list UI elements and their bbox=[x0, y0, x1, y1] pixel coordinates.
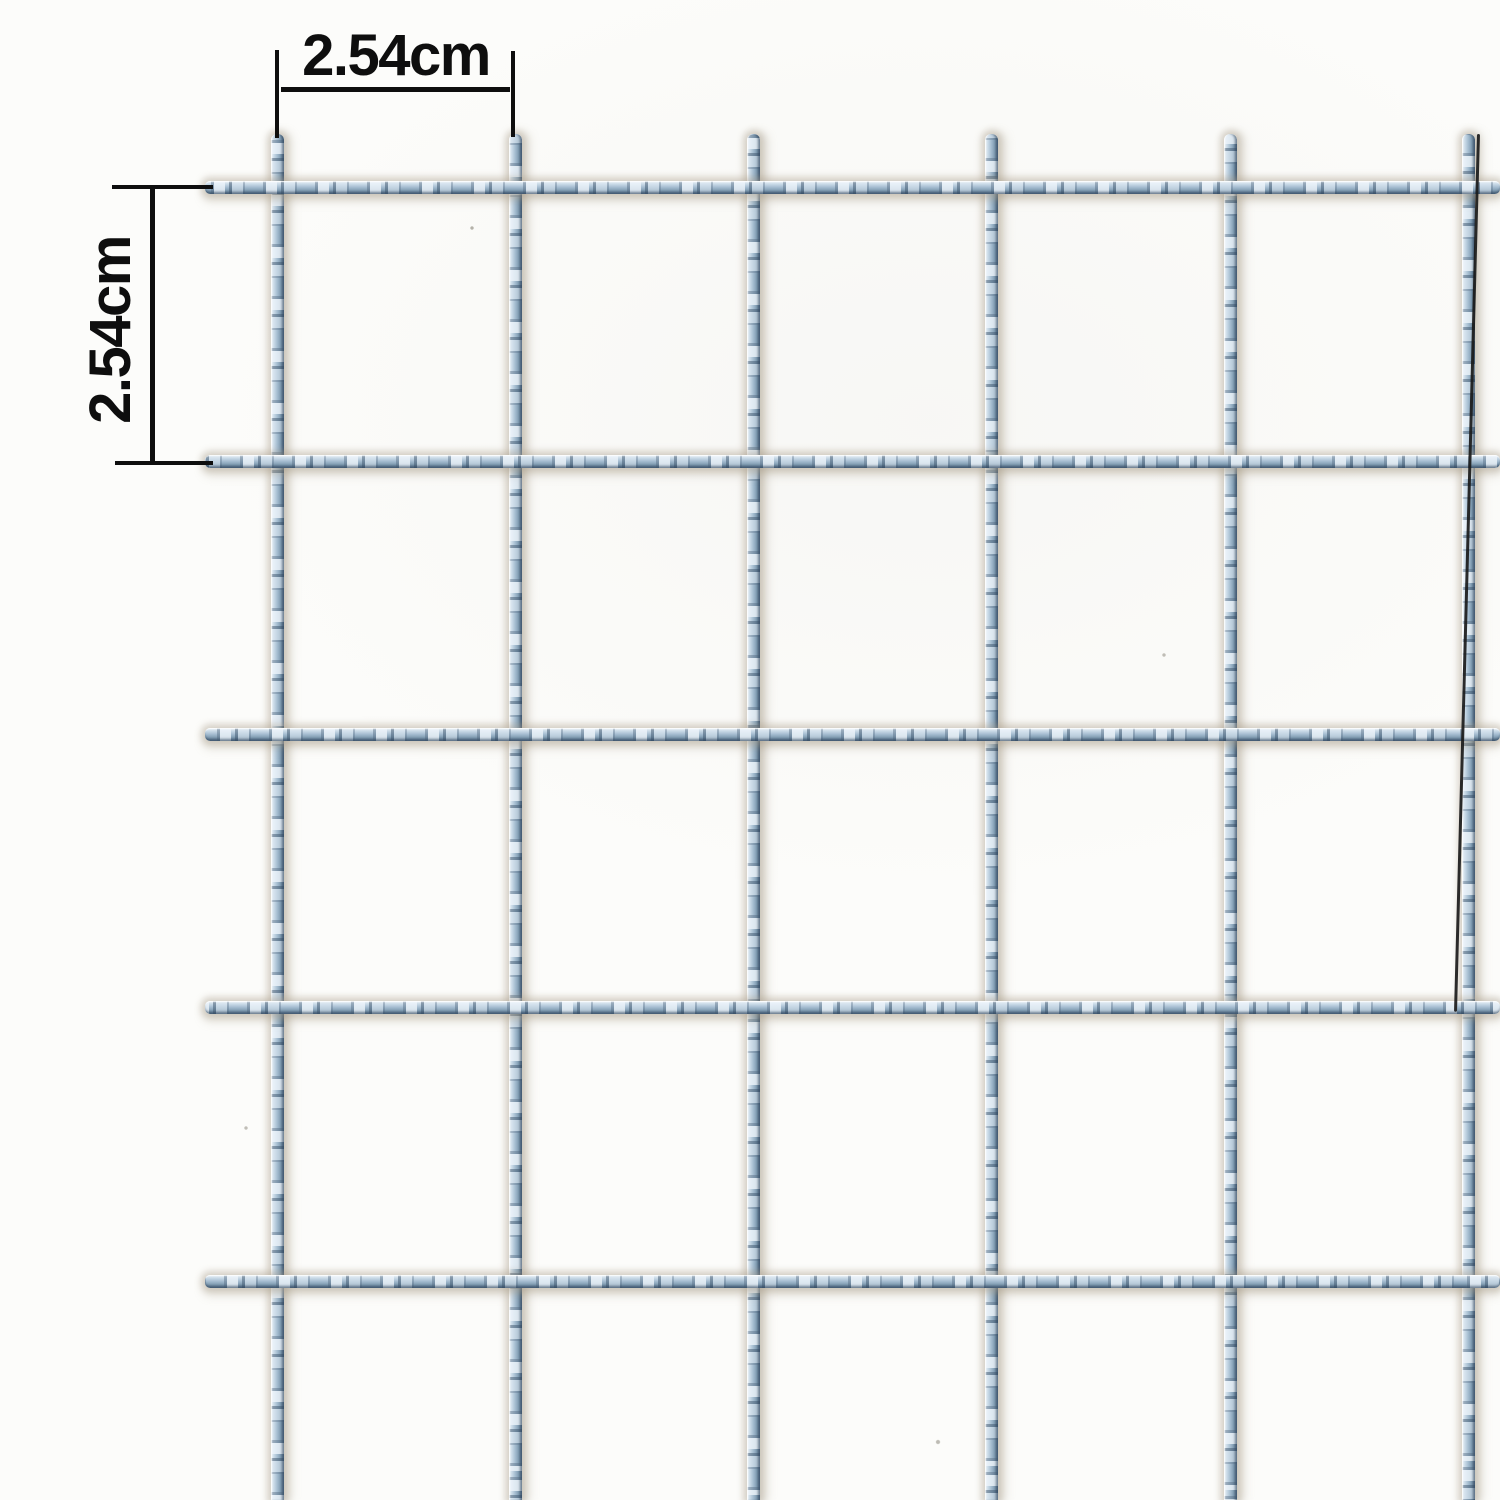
horizontal-wire bbox=[205, 455, 1500, 468]
horizontal-wire bbox=[205, 1001, 1500, 1014]
wire-mesh bbox=[0, 0, 1500, 1500]
vertical-wire bbox=[1224, 134, 1237, 1500]
left-dimension-line bbox=[150, 187, 155, 462]
left-dimension-bottom-tick bbox=[115, 461, 213, 465]
left-dimension-label: 2.54cm bbox=[82, 236, 140, 424]
vertical-wire bbox=[985, 134, 998, 1500]
top-dimension-right-tick bbox=[511, 51, 515, 137]
mesh-product-image: 2.54cm 2.54cm bbox=[0, 0, 1500, 1500]
vertical-wire bbox=[271, 134, 284, 1500]
top-dimension-line bbox=[281, 87, 510, 92]
top-dimension-label: 2.54cm bbox=[302, 27, 490, 85]
horizontal-wire bbox=[205, 1275, 1500, 1288]
vertical-wire bbox=[747, 134, 760, 1500]
left-dimension-top-tick bbox=[112, 185, 213, 189]
vertical-wire bbox=[509, 134, 522, 1500]
top-dimension-left-tick bbox=[275, 50, 279, 138]
horizontal-wire bbox=[205, 728, 1500, 741]
horizontal-wire bbox=[205, 181, 1500, 194]
